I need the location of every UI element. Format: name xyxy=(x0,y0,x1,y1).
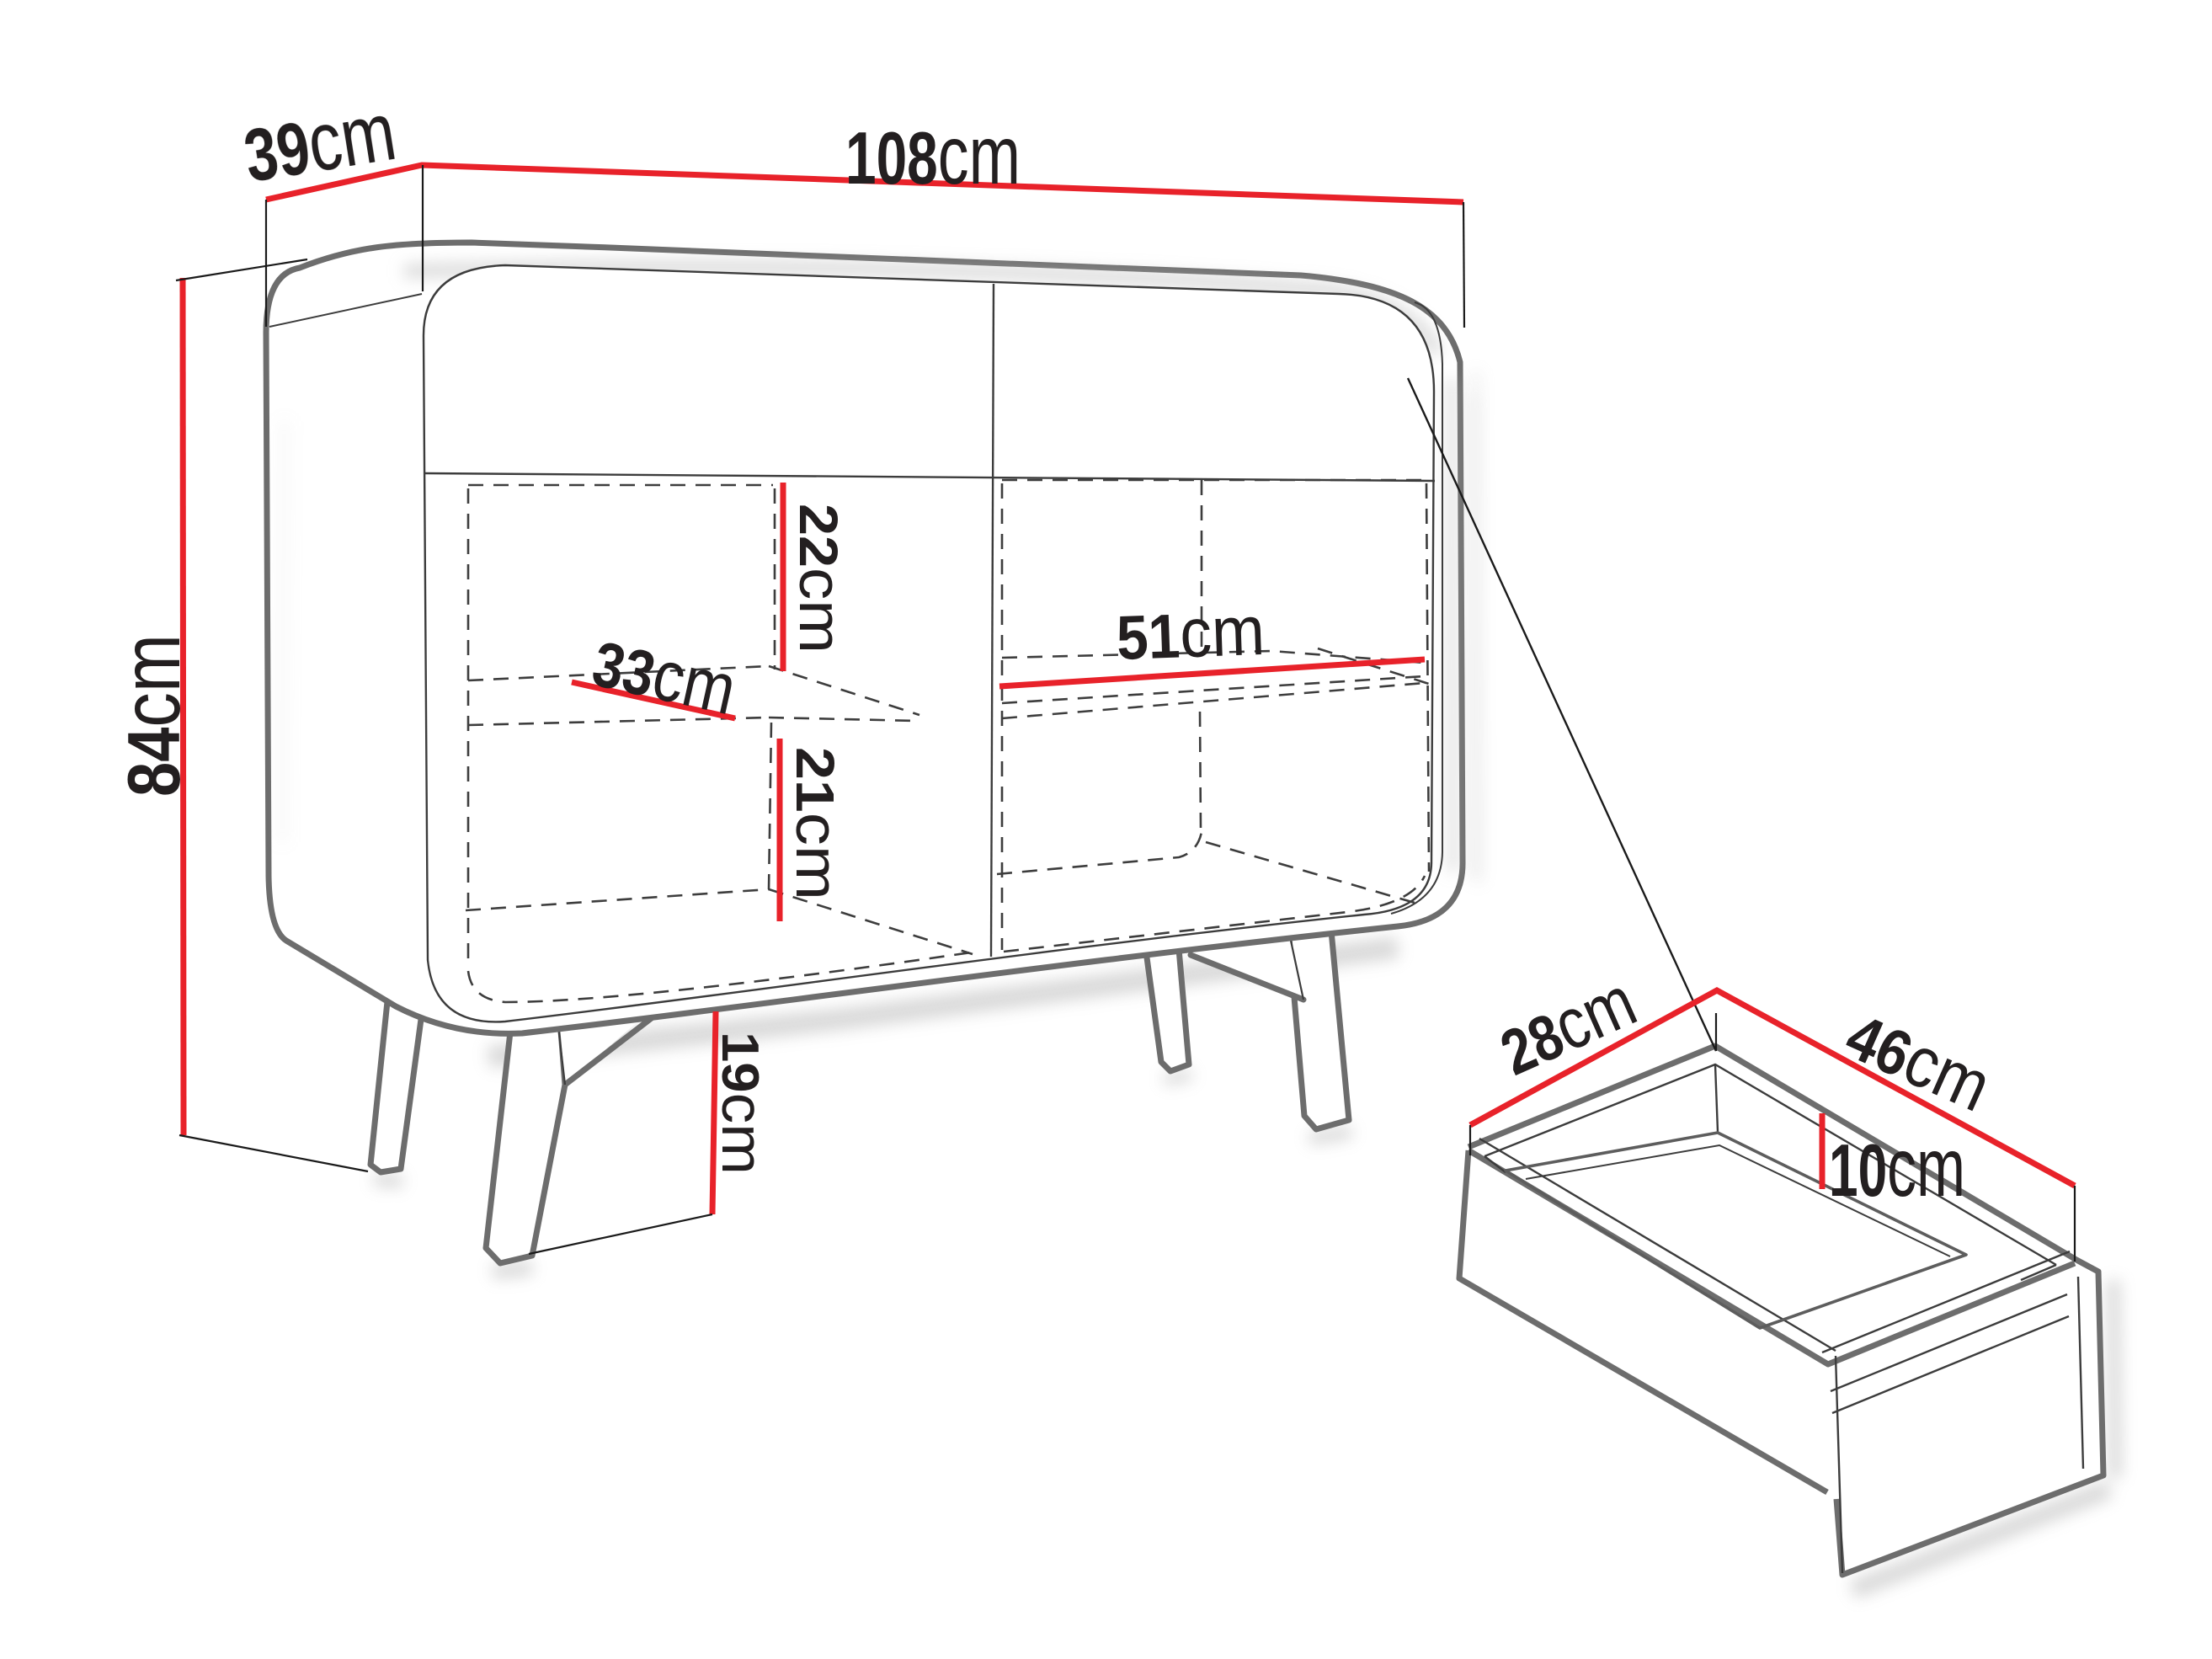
svg-text:19cm: 19cm xyxy=(710,1032,776,1175)
svg-text:108cm: 108cm xyxy=(845,109,1021,201)
svg-text:10cm: 10cm xyxy=(1829,1121,1965,1214)
svg-text:22cm: 22cm xyxy=(786,504,854,653)
svg-text:51cm: 51cm xyxy=(1115,591,1266,675)
svg-text:84cm: 84cm xyxy=(104,634,197,797)
svg-text:21cm: 21cm xyxy=(783,747,850,900)
